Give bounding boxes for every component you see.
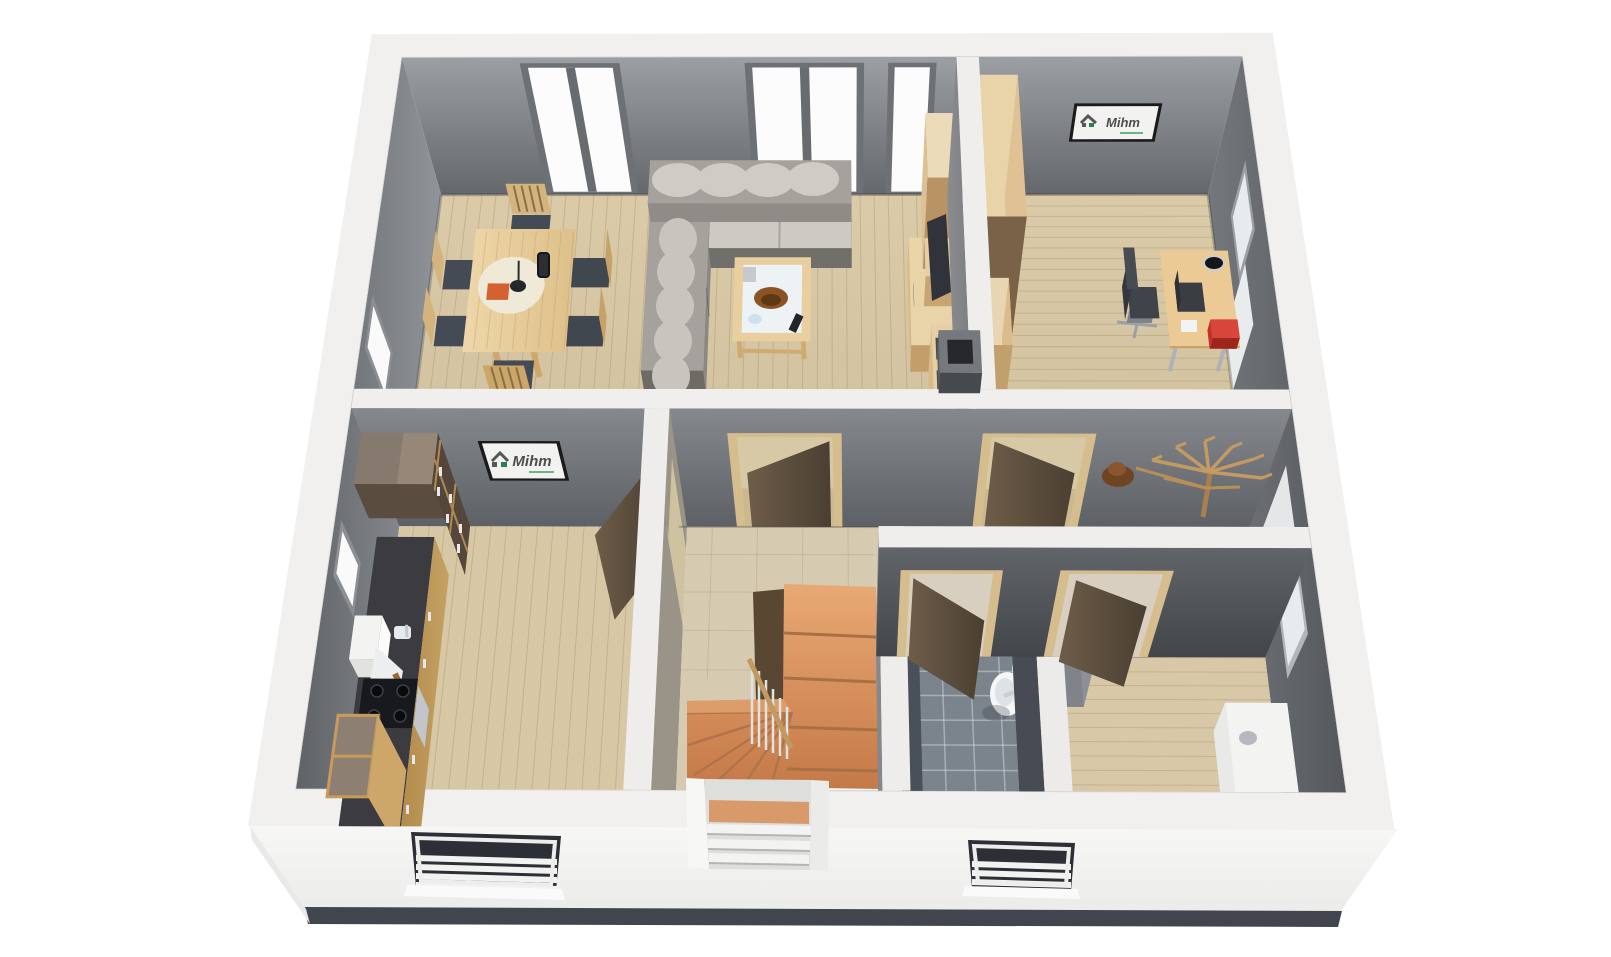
- svg-text:Mihm: Mihm: [512, 453, 551, 470]
- svg-text:Mihm: Mihm: [1106, 115, 1140, 130]
